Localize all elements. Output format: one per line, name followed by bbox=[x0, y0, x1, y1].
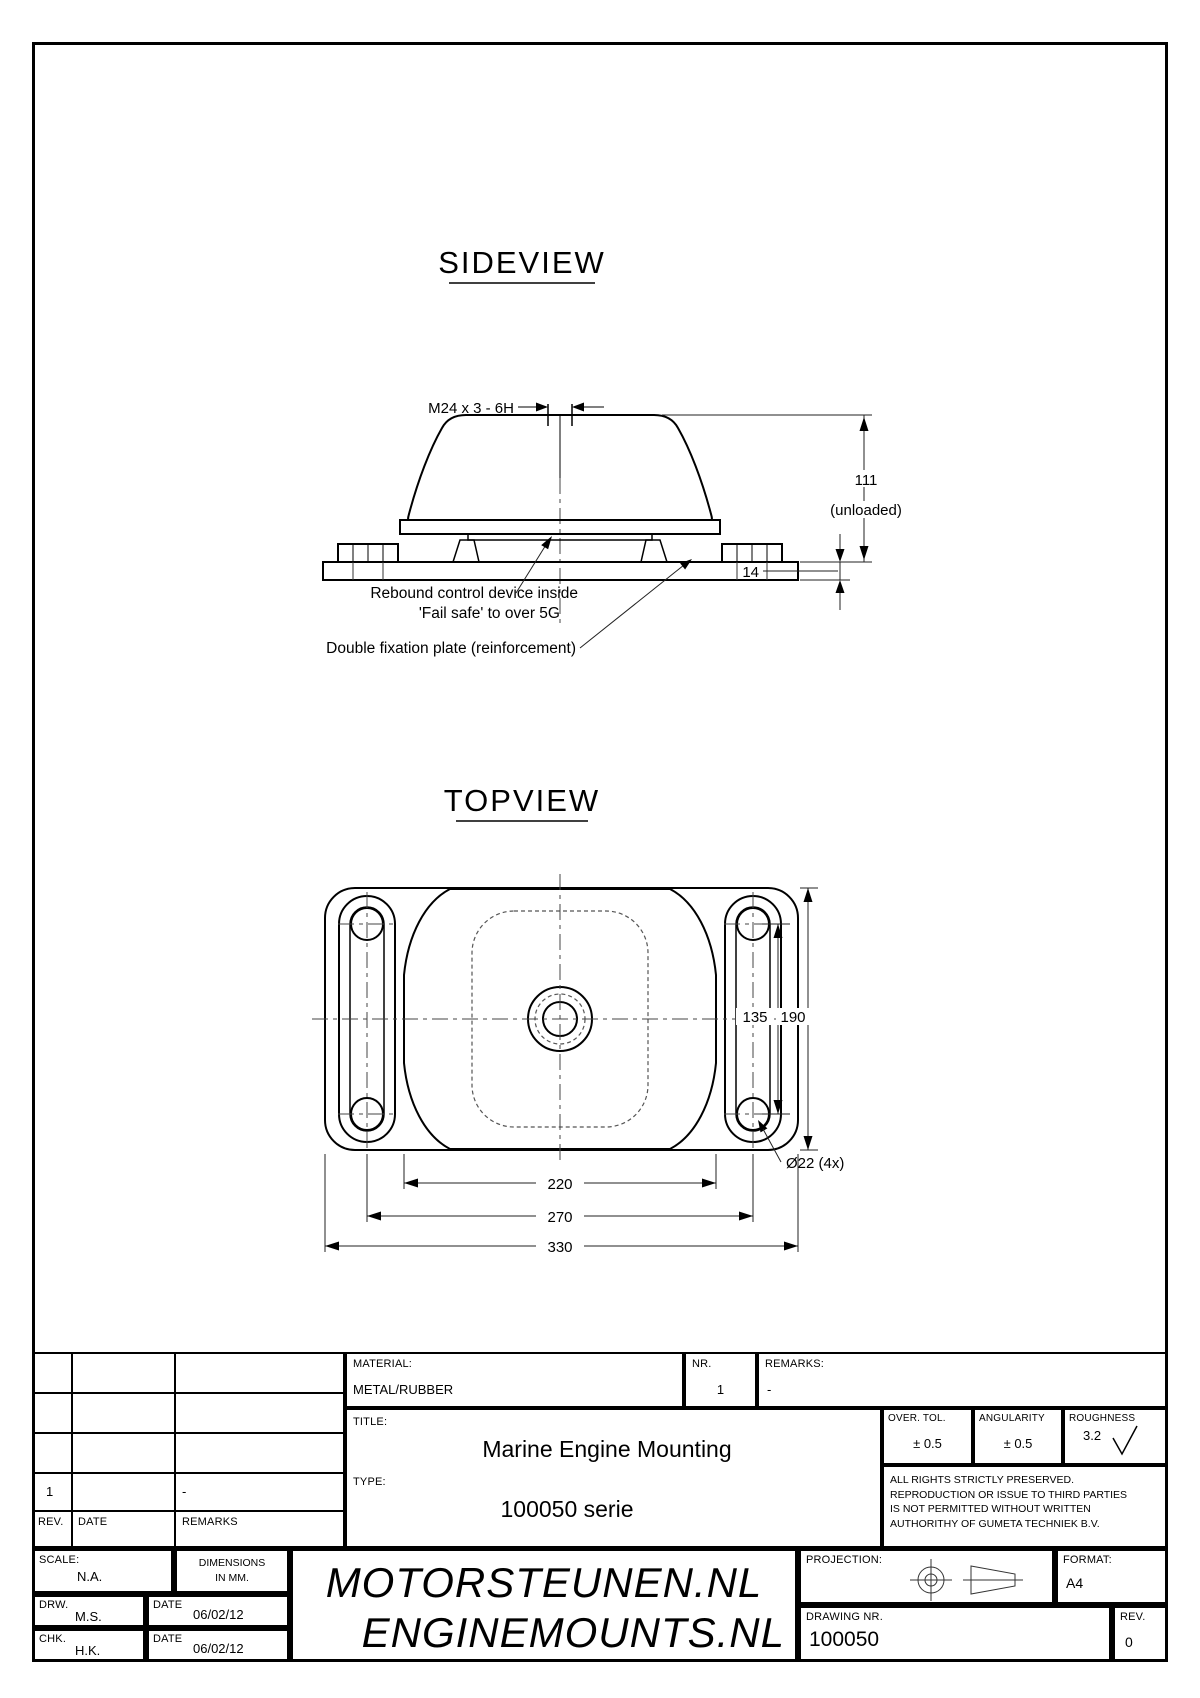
roughness-value: 3.2 bbox=[1083, 1428, 1101, 1443]
rights-line4: AUTHORITHY OF GUMETA TECHNIEK B.V. bbox=[890, 1517, 1127, 1532]
height-note: (unloaded) bbox=[830, 502, 902, 519]
drw-label: DRW. bbox=[39, 1599, 68, 1611]
drw-value: M.S. bbox=[75, 1609, 102, 1624]
dim-135: 135 bbox=[742, 1009, 767, 1026]
revision-remarks-value: - bbox=[182, 1484, 186, 1499]
projection-symbol-icon bbox=[896, 1555, 1046, 1605]
sideview-drawing: SIDEVIEW bbox=[323, 245, 915, 657]
nr-cell: NR. 1 bbox=[684, 1352, 757, 1408]
roughness-label: ROUGHNESS bbox=[1069, 1413, 1135, 1424]
date-label: DATE bbox=[153, 1599, 182, 1611]
topview-drawing: TOPVIEW bbox=[312, 783, 844, 1256]
rebound-note-line1: Rebound control device inside bbox=[370, 585, 578, 602]
nr-label: NR. bbox=[692, 1358, 712, 1370]
revision-table: 1 - REV. DATE REMARKS bbox=[32, 1352, 345, 1548]
topview-title: TOPVIEW bbox=[444, 783, 600, 818]
over-tol-cell: OVER. TOL. ± 0.5 bbox=[882, 1408, 973, 1465]
material-label: MATERIAL: bbox=[353, 1358, 412, 1370]
chk-date-value: 06/02/12 bbox=[193, 1641, 244, 1656]
remarks-value: - bbox=[767, 1382, 771, 1397]
nr-value: 1 bbox=[686, 1382, 755, 1397]
chk-label: CHK. bbox=[39, 1633, 66, 1645]
drawing-type: 100050 serie bbox=[397, 1496, 737, 1523]
arrow-icon bbox=[804, 1136, 813, 1150]
title-type-cell: TITLE: Marine Engine Mounting TYPE: 1000… bbox=[345, 1408, 882, 1548]
dimensions-note-line2: IN MM. bbox=[177, 1571, 287, 1586]
dimensions-note-line1: DIMENSIONS bbox=[177, 1556, 287, 1571]
title-label: TITLE: bbox=[353, 1416, 387, 1428]
rev-label: REV. bbox=[1120, 1611, 1145, 1623]
revision-header-remarks: REMARKS bbox=[182, 1516, 238, 1528]
arrow-icon bbox=[572, 403, 584, 412]
dim-270: 270 bbox=[547, 1209, 572, 1226]
arrow-icon bbox=[404, 1179, 418, 1188]
material-cell: MATERIAL: METAL/RUBBER bbox=[345, 1352, 684, 1408]
angularity-label: ANGULARITY bbox=[979, 1413, 1045, 1424]
chk-cell: CHK. H.K. bbox=[32, 1628, 146, 1662]
format-label: FORMAT: bbox=[1063, 1554, 1112, 1566]
fixation-note: Double fixation plate (reinforcement) bbox=[326, 640, 576, 657]
remarks-cell: REMARKS: - bbox=[757, 1352, 1168, 1408]
drw-date-cell: DATE 06/02/12 bbox=[146, 1594, 290, 1628]
brand-cell: MOTORSTEUNEN.NL ENGINEMOUNTS.NL bbox=[290, 1548, 798, 1662]
scale-value: N.A. bbox=[77, 1569, 102, 1584]
arrow-icon bbox=[325, 1242, 339, 1251]
dim-190: 190 bbox=[780, 1009, 805, 1026]
over-tol-label: OVER. TOL. bbox=[888, 1413, 946, 1424]
drw-cell: DRW. M.S. bbox=[32, 1594, 146, 1628]
drw-date-value: 06/02/12 bbox=[193, 1607, 244, 1622]
base-dim: 14 bbox=[742, 564, 759, 581]
scale-cell: SCALE: N.A. bbox=[32, 1548, 174, 1594]
type-label: TYPE: bbox=[353, 1476, 386, 1488]
drawing-sheet: SIDEVIEW bbox=[0, 0, 1200, 1698]
dim-220: 220 bbox=[547, 1176, 572, 1193]
projection-label: PROJECTION: bbox=[806, 1554, 882, 1566]
arrow-icon bbox=[836, 549, 845, 562]
revision-rev-value: 1 bbox=[46, 1484, 53, 1499]
brand-line2: ENGINEMOUNTS.NL bbox=[362, 1609, 785, 1657]
rights-cell: ALL RIGHTS STRICTLY PRESERVED. REPRODUCT… bbox=[882, 1465, 1168, 1548]
arrow-icon bbox=[367, 1212, 381, 1221]
arrow-icon bbox=[784, 1242, 798, 1251]
arrow-icon bbox=[541, 536, 552, 549]
arrow-icon bbox=[836, 580, 845, 593]
roughness-icon bbox=[1111, 1424, 1141, 1458]
arrow-icon bbox=[702, 1179, 716, 1188]
rights-line1: ALL RIGHTS STRICTLY PRESERVED. bbox=[890, 1473, 1127, 1488]
rights-line3: IS NOT PERMITTED WITHOUT WRITTEN bbox=[890, 1502, 1127, 1517]
arrow-icon bbox=[860, 417, 869, 431]
rev-cell: REV. 0 bbox=[1112, 1605, 1168, 1662]
brand-line1: MOTORSTEUNEN.NL bbox=[293, 1559, 795, 1607]
arrow-icon bbox=[680, 559, 692, 570]
sideview-title: SIDEVIEW bbox=[438, 245, 606, 280]
hole-callout: Ø22 (4x) bbox=[786, 1155, 844, 1172]
drawing-nr-label: DRAWING NR. bbox=[806, 1611, 883, 1623]
chk-value: H.K. bbox=[75, 1643, 100, 1658]
scale-label: SCALE: bbox=[39, 1554, 79, 1566]
over-tol-value: ± 0.5 bbox=[884, 1436, 971, 1451]
drawing-nr-cell: DRAWING NR. 100050 bbox=[798, 1605, 1112, 1662]
arrow-icon bbox=[860, 546, 869, 560]
format-cell: FORMAT: A4 bbox=[1055, 1548, 1168, 1605]
dimensions-note-cell: DIMENSIONS IN MM. bbox=[174, 1548, 290, 1594]
thread-callout: M24 x 3 - 6H bbox=[428, 400, 514, 417]
arrow-icon bbox=[739, 1212, 753, 1221]
arrow-icon bbox=[804, 888, 813, 902]
height-dim: 111 bbox=[855, 472, 878, 489]
date-label: DATE bbox=[153, 1633, 182, 1645]
remarks-label: REMARKS: bbox=[765, 1358, 824, 1370]
revision-header-date: DATE bbox=[78, 1516, 107, 1528]
drawing-title: Marine Engine Mounting bbox=[397, 1436, 817, 1463]
revision-header-rev: REV. bbox=[38, 1516, 63, 1528]
angularity-value: ± 0.5 bbox=[975, 1436, 1061, 1451]
drawing-nr-value: 100050 bbox=[809, 1628, 879, 1652]
projection-cell: PROJECTION: bbox=[798, 1548, 1055, 1605]
format-value: A4 bbox=[1066, 1575, 1083, 1591]
roughness-cell: ROUGHNESS 3.2 bbox=[1063, 1408, 1168, 1465]
material-value: METAL/RUBBER bbox=[353, 1382, 453, 1397]
angularity-cell: ANGULARITY ± 0.5 bbox=[973, 1408, 1063, 1465]
dim-330: 330 bbox=[547, 1239, 572, 1256]
chk-date-cell: DATE 06/02/12 bbox=[146, 1628, 290, 1662]
arrow-icon bbox=[536, 403, 548, 412]
rights-line2: REPRODUCTION OR ISSUE TO THIRD PARTIES bbox=[890, 1488, 1127, 1503]
rebound-note-line2: 'Fail safe' to over 5G bbox=[419, 605, 560, 622]
rev-value: 0 bbox=[1125, 1634, 1133, 1650]
